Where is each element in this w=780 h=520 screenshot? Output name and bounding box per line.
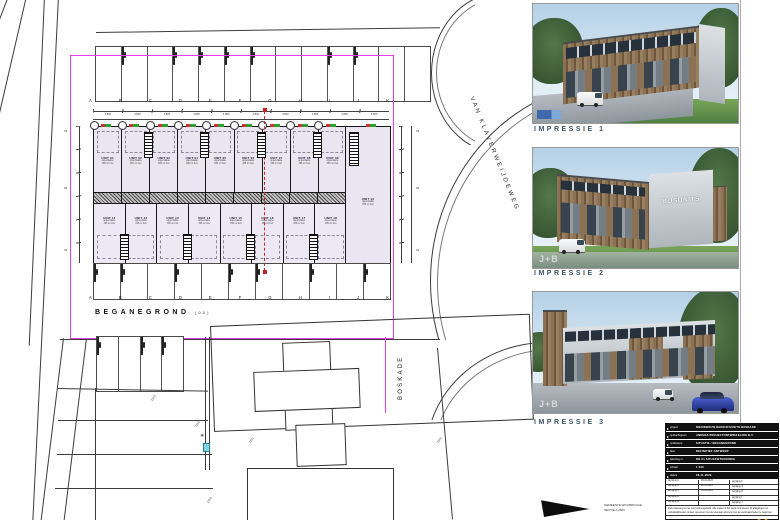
site-boundary [70, 55, 394, 339]
title-field-value: SITUATIE / BEGANEGROND [696, 442, 736, 445]
title-block-row: schaal 1:100 [666, 464, 778, 472]
title-field-label: schaal [666, 466, 696, 469]
title-field-label: tekening nr. [666, 458, 696, 461]
parcel-line [95, 388, 96, 520]
title-field-label: fase [666, 450, 696, 453]
logo-watermark [537, 110, 561, 119]
row-marker: 01 [64, 248, 67, 252]
row-marker: 01 [416, 248, 419, 252]
revision-label-2: wijziging H [730, 491, 778, 493]
title-field-value: 06-11-2023 [696, 474, 712, 477]
title-block: project NIEUWBOUW BEDRIJFSUNITS BOSKADE … [665, 423, 779, 520]
building-end-wall [699, 24, 725, 104]
revision-label: wijziging C [666, 490, 699, 494]
title-block-row: tekening nr. DO-01 SITUATIETEKENING [666, 456, 778, 464]
row-marker: 03 [64, 129, 67, 133]
cadastre-line2: SECTIE A 2563 [604, 508, 642, 513]
impression-2-image: BOSUNITS J+B [532, 147, 739, 269]
title-field-value: 1:100 [696, 466, 704, 469]
watermark: J+B [539, 399, 559, 409]
floor-label: BEGANEGROND [95, 309, 190, 316]
title-field-value: ANDERA PROJECTONTWIKKELING B.V. [696, 434, 754, 437]
road-line [40, 338, 64, 520]
title-field-value: DO-01 SITUATIETEKENING [696, 458, 735, 461]
parking-stall [141, 337, 163, 391]
title-field-value: DEFINITIEF ONTWERP [696, 450, 729, 453]
stair-icon [144, 132, 153, 158]
revision-label-2: wijziging I [730, 497, 778, 499]
facade-sign: BOSUNITS [649, 195, 713, 206]
title-field-label: datum [666, 474, 696, 477]
stair-icon [246, 234, 255, 260]
floor-plan-title: BEGANEGROND ( 0.0 ) [95, 309, 209, 316]
revision-date: 05-02-2024 [699, 490, 730, 494]
title-field-label: onderwerp [666, 442, 696, 445]
revision-label: wijziging E [666, 501, 699, 505]
survey-label: 2560 [436, 436, 443, 444]
revision-label-2: wijziging J [730, 502, 778, 504]
pavement [533, 252, 738, 268]
stair-icon [309, 234, 318, 260]
benchmark-icon: ✳ [200, 433, 204, 439]
survey-label: 2563 [150, 394, 157, 402]
row-marker: 03 [416, 129, 419, 133]
parking-stall [405, 47, 430, 101]
revision-label: wijziging A [666, 480, 699, 484]
cadastre-note: GEMEENTE WOUBRUGGE SECTIE A 2563 [604, 503, 642, 512]
title-field-value: NIEUWBOUW BEDRIJFSUNITS BOSKADE [696, 426, 756, 429]
drawing-sheet: ABCDEFGHIJK 4.8004.8004.8004.8004.8004.8… [0, 0, 780, 520]
parcel-line [58, 420, 208, 421]
stair-icon [257, 132, 266, 158]
revision-label: wijziging D [666, 496, 699, 500]
title-block-row: project NIEUWBOUW BEDRIJFSUNITS BOSKADE [666, 424, 778, 432]
road-line [32, 0, 59, 520]
parcel-line [55, 488, 213, 489]
building-corner-wall: BOSUNITS [649, 170, 713, 248]
van-icon [653, 389, 673, 399]
row-marker: 02 [64, 186, 67, 190]
north-arrow-icon [541, 492, 589, 517]
revision-date [699, 501, 730, 505]
survey-marker [203, 443, 210, 452]
parking-stall [119, 337, 141, 391]
stair-icon [200, 132, 209, 158]
parking-stall [97, 337, 119, 391]
revision-label-2: wijziging G [730, 486, 778, 488]
building-facade [713, 186, 727, 242]
title-field-label: opdrachtgever [666, 434, 696, 437]
parcel-line [57, 454, 212, 455]
survey-label: 2562 [194, 420, 201, 428]
title-field-label: project [666, 426, 696, 429]
revision-date: 22-01-2024 [699, 485, 730, 489]
stair-icon [183, 234, 192, 260]
revision-label-2: wijziging F [730, 481, 778, 483]
title-block-row: datum 06-11-2023 [666, 472, 778, 480]
dimension-line [411, 126, 412, 263]
cadastre-line1: GEMEENTE WOUBRUGGE [604, 503, 642, 508]
revision-date [699, 496, 730, 500]
title-block-rows: project NIEUWBOUW BEDRIJFSUNITS BOSKADE … [666, 424, 778, 480]
existing-building-outline [252, 336, 360, 436]
stair-icon [313, 132, 322, 158]
impression-1-image [532, 3, 739, 124]
revision-rows: wijziging A 08-01-2024 wijziging F wijzi… [666, 480, 778, 506]
title-block-row: onderwerp SITUATIE / BEGANEGROND [666, 440, 778, 448]
impression-3-image: J+B [532, 291, 739, 414]
watermark: J+B [539, 254, 559, 264]
title-block-note: Deze tekening is met zorg samengesteld. … [666, 506, 778, 516]
revision-date: 08-01-2024 [699, 480, 730, 484]
annex-outline [295, 423, 346, 467]
parcel-outline [247, 468, 394, 520]
parking-stall [162, 337, 183, 391]
title-block-row: fase DEFINITIEF ONTWERP [666, 448, 778, 456]
floor-level: ( 0.0 ) [195, 310, 209, 315]
parking-row-lower [96, 336, 184, 392]
survey-label: 2561 [248, 436, 255, 444]
impression-3-label: IMPRESSIE 3 [534, 419, 605, 426]
van-icon [559, 239, 585, 252]
car-icon [97, 336, 99, 355]
company-row: J+B bouwkundig tekenburo [666, 516, 778, 520]
road-line [63, 338, 87, 520]
impression-1-label: IMPRESSIE 1 [534, 126, 605, 133]
survey-label: 2559 [206, 496, 213, 504]
car-icon [141, 336, 143, 355]
van-icon [577, 92, 603, 105]
stair-icon [120, 234, 129, 260]
road-line [96, 27, 440, 33]
title-block-row: opdrachtgever ANDERA PROJECTONTWIKKELING… [666, 432, 778, 440]
car-icon [162, 336, 164, 355]
dimension-ticks [399, 126, 404, 263]
sheet-fold-line [740, 0, 741, 423]
revision-label: wijziging B [666, 485, 699, 489]
row-marker: 02 [416, 186, 419, 190]
blue-car-icon [692, 397, 734, 411]
impression-2-label: IMPRESSIE 2 [534, 270, 605, 277]
road-line [0, 0, 27, 142]
